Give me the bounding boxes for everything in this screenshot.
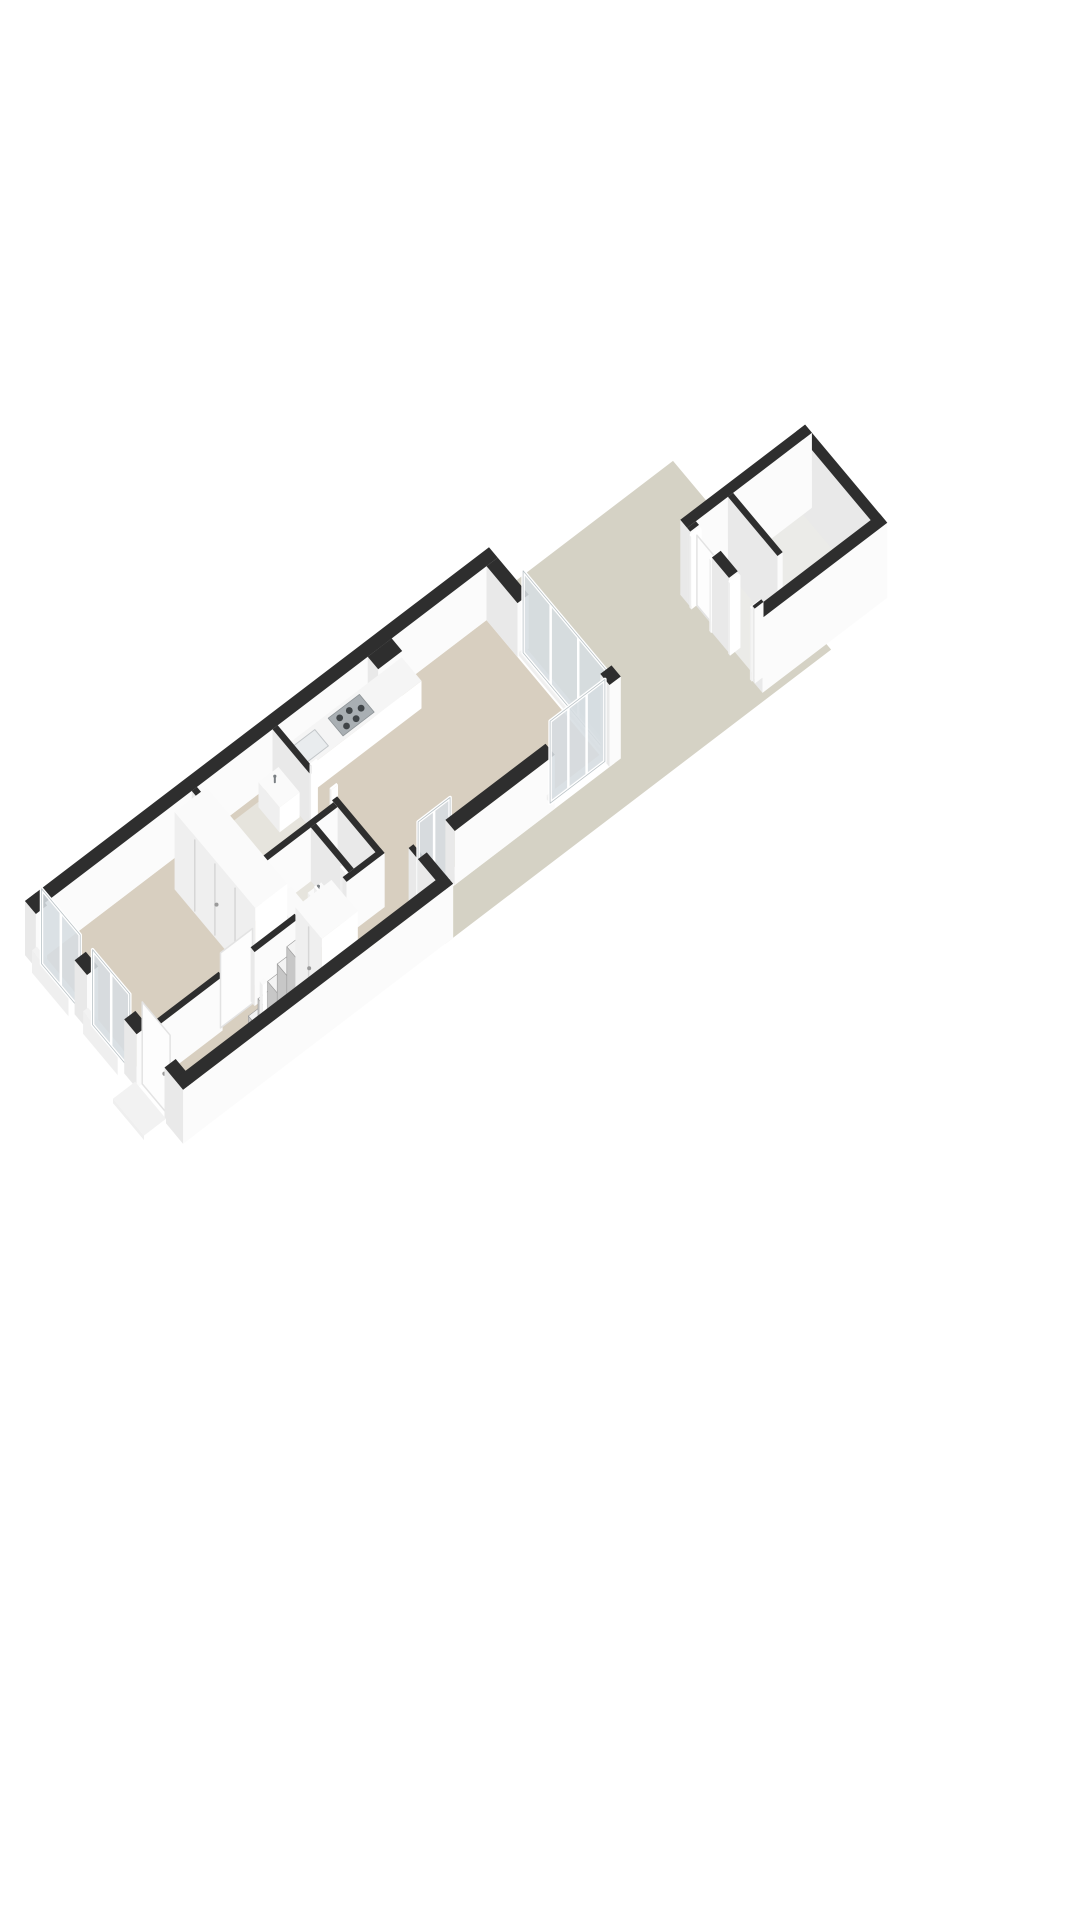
- floorplan-page: [0, 0, 1080, 1920]
- floorplan-3d-render: [0, 0, 1080, 1920]
- shed-front-wall-seg: [753, 599, 764, 683]
- shed-door-frame-post: [728, 573, 740, 656]
